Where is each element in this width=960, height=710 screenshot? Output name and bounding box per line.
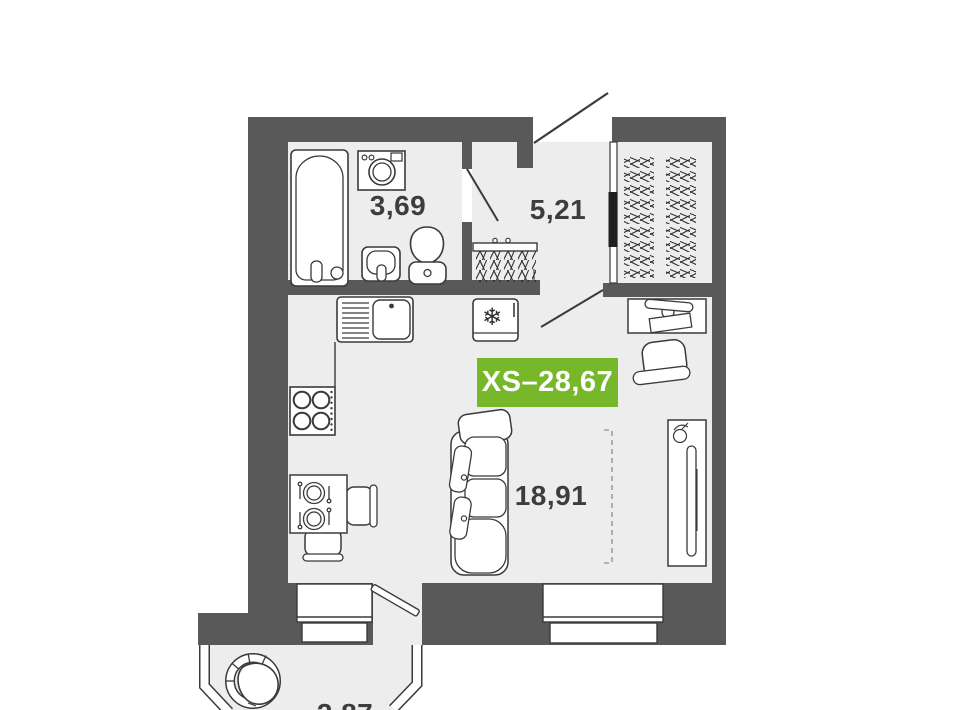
sofa-cushion (465, 479, 506, 517)
sofa (449, 409, 513, 575)
bathtub (291, 150, 348, 286)
snowflake-icon: ❄ (482, 303, 502, 331)
wall-segment (462, 142, 472, 169)
coat-rack (473, 238, 537, 282)
living-room-window (543, 584, 663, 643)
toilet (409, 227, 446, 284)
fridge: ❄ (473, 299, 518, 341)
living-kitchen-area-label: 18,91 (515, 480, 588, 512)
washing-machine (358, 151, 405, 190)
armchair-seat (238, 663, 278, 704)
wall-segment (462, 222, 472, 280)
floor-plan: ❄ (0, 0, 960, 710)
floor-plan-drawing: ❄ (0, 0, 960, 710)
tv-stand (668, 420, 706, 566)
wall-segment (603, 283, 712, 297)
tv (687, 446, 696, 556)
hallway-area-label: 5,21 (530, 194, 587, 226)
window-sill (550, 623, 657, 643)
hallway-fixtures (473, 238, 537, 282)
wall-segment (248, 117, 533, 142)
wardrobe-door-bar (609, 192, 618, 247)
balcony-area-label: 2,87 (317, 698, 374, 710)
wardrobe-hangers (624, 156, 654, 278)
dining-chair (346, 487, 373, 525)
bathroom-area-label: 3,69 (370, 190, 427, 222)
wall-segment (198, 613, 300, 645)
stove (290, 387, 335, 435)
kitchen-sink (337, 297, 413, 342)
window-sill (302, 623, 367, 642)
wall-segment (248, 117, 288, 613)
wardrobe-hangers (666, 156, 696, 278)
unit-area-badge: XS–28,67 (477, 358, 618, 407)
coat-rack-hatch (474, 251, 536, 282)
washbasin (362, 247, 400, 281)
balcony-side-window (297, 584, 372, 642)
wall-segment (712, 117, 726, 645)
wall-segment (517, 142, 533, 168)
bathtub-tap (311, 261, 322, 282)
wall-segment (612, 117, 726, 142)
bathtub-drain (331, 267, 343, 279)
washbasin-tap (377, 265, 386, 281)
entrance-door-leaf (534, 93, 608, 143)
